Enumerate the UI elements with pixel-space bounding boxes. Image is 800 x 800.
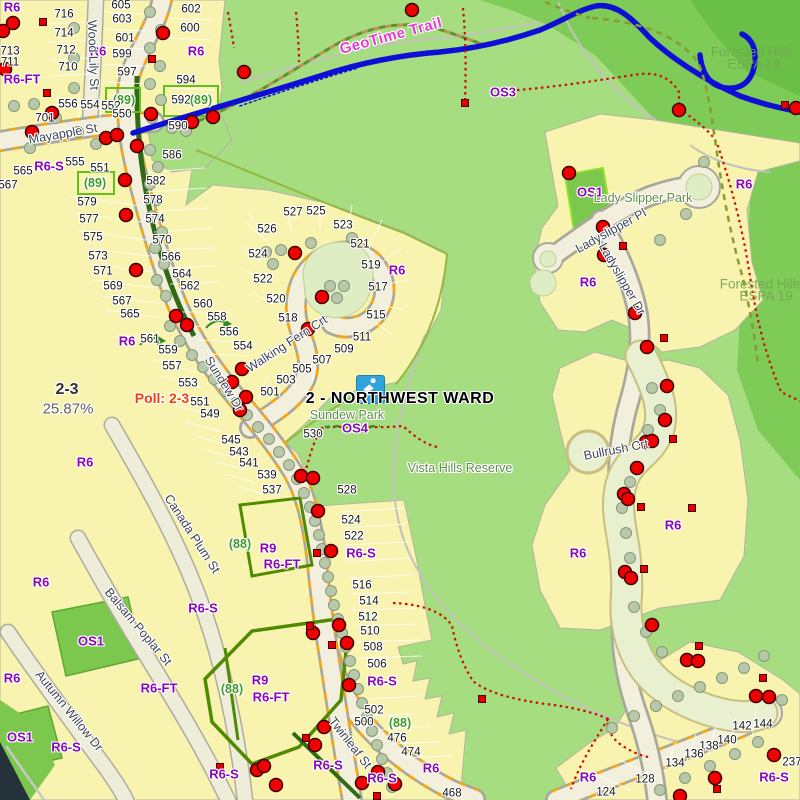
map-label-lot: 566 (161, 252, 180, 264)
map-label-lot: 517 (368, 282, 387, 294)
map-labels: R6R6R6R6-FTR6-SR6R6R6R6R6-FTR9R6-FTOS1OS… (0, 0, 800, 800)
map-label-lot: 571 (93, 266, 112, 278)
map-label-zg: (88) (221, 683, 243, 696)
map-label-pct: 25.87% (43, 402, 94, 417)
map-label-zone: R6 (33, 576, 50, 589)
map-label-lot: 526 (257, 224, 276, 236)
map-label-lot: 716 (54, 9, 73, 21)
map-label-zone: R6-S (188, 602, 218, 615)
map-label-lot: 124 (596, 787, 615, 799)
map-label-lot: 539 (257, 470, 276, 482)
map-label-lot: 558 (207, 312, 226, 324)
map-label-lot: 553 (178, 378, 197, 390)
map-label-lot: 502 (364, 705, 383, 717)
map-label-lot: 522 (253, 274, 272, 286)
map-label-espa: ESPA 19 (727, 57, 780, 71)
map-label-zone: R6 (77, 456, 94, 469)
map-label-lot: 549 (200, 409, 219, 421)
map-label-zg: (88) (389, 717, 411, 730)
map-label-zone: R6-S (367, 772, 397, 785)
map-label-zg: (89) (190, 94, 212, 107)
map-label-zone: R6 (736, 178, 753, 191)
map-label-lot: 601 (115, 33, 134, 45)
map-label-lot: 528 (337, 485, 356, 497)
map-label-lot: 578 (143, 195, 162, 207)
map-label-lot: 525 (306, 206, 325, 218)
map-label-zone: R6-S (34, 160, 64, 173)
map-canvas[interactable]: R6R6R6R6-FTR6-SR6R6R6R6R6-FTR9R6-FTOS1OS… (0, 0, 800, 800)
map-label-zone: R6-S (367, 675, 397, 688)
map-label-lot: 557 (162, 361, 181, 373)
map-label-zone: R9 (252, 674, 269, 687)
map-label-lot: 573 (88, 251, 107, 263)
map-label-park: Sundew Park (310, 409, 384, 422)
map-label-zone: R6 (188, 45, 205, 58)
map-label-lot: 524 (341, 515, 360, 527)
map-label-park: Vista Hills Reserve (408, 462, 513, 475)
map-label-st: Mayapple St (28, 122, 99, 146)
map-label-lot: 570 (152, 235, 171, 247)
map-label-lot: 600 (180, 23, 199, 35)
map-label-lot: 562 (180, 281, 199, 293)
map-label-lot: 530 (303, 429, 322, 441)
map-label-lot: 523 (333, 220, 352, 232)
map-label-lot: 144 (753, 719, 772, 731)
map-label-zone: R6-S (346, 547, 376, 560)
map-label-lot: 521 (350, 239, 369, 251)
map-label-st: Canada Plum St (162, 492, 222, 575)
map-label-lot: 524 (248, 249, 267, 261)
map-label-lot: 507 (312, 355, 331, 367)
map-label-lot: 508 (363, 642, 382, 654)
map-label-zone: R6 (570, 547, 587, 560)
map-label-lot: 237 (782, 757, 800, 769)
map-label-lot: 551 (90, 163, 109, 175)
map-label-lot: 522 (344, 531, 363, 543)
map-label-lot: 555 (65, 157, 84, 169)
map-label-lot: 550 (112, 109, 131, 121)
map-label-lot: 569 (103, 281, 122, 293)
map-label-lot: 140 (717, 735, 736, 747)
map-label-lot: 560 (193, 299, 212, 311)
map-label-lot: 515 (366, 310, 385, 322)
map-label-zone: R6-FT (4, 73, 41, 86)
map-label-lot: 556 (219, 327, 238, 339)
map-label-lot: 511 (353, 332, 371, 344)
map-label-lot: 142 (732, 721, 751, 733)
map-label-lot: 134 (665, 758, 684, 770)
map-label-zone: R6 (4, 672, 21, 685)
map-label-lot: 554 (80, 100, 99, 112)
map-label-lot: 586 (162, 150, 181, 162)
map-label-lot: 474 (401, 747, 420, 759)
map-label-lot: 575 (83, 232, 102, 244)
map-label-lot: 537 (262, 485, 281, 497)
map-label-lot: 468 (442, 788, 461, 800)
map-label-lot: 500 (354, 717, 373, 729)
map-label-st: Wood Lily St (86, 20, 101, 90)
map-label-lot: 603 (112, 14, 131, 26)
map-label-lot: 551 (190, 397, 209, 409)
map-label-zone: R6-FT (253, 691, 290, 704)
map-label-lot: 712 (56, 45, 75, 57)
map-label-espa: ESPA 19 (739, 289, 792, 303)
map-label-lot: 605 (111, 0, 130, 12)
map-label-lot: 514 (359, 596, 378, 608)
map-label-lot: 701 (35, 113, 54, 125)
map-label-zone: R6 (580, 771, 597, 784)
map-label-zone: R6-FT (141, 682, 178, 695)
map-label-zone: R6 (389, 264, 406, 277)
map-label-lot: 714 (54, 28, 73, 40)
map-label-lot: 518 (278, 313, 297, 325)
map-label-lot: 512 (358, 612, 377, 624)
map-label-lot: 567 (0, 180, 18, 192)
map-label-lot: 711 (1, 57, 19, 69)
map-label-lot: 136 (684, 749, 703, 761)
map-label-zone: OS1 (78, 635, 104, 648)
map-label-zone: OS1 (7, 731, 33, 744)
map-label-lot: 506 (367, 659, 386, 671)
map-label-lot: 567 (112, 296, 131, 308)
map-label-lot: 602 (181, 4, 200, 16)
map-label-lot: 516 (352, 580, 371, 592)
map-label-lot: 476 (387, 733, 406, 745)
map-label-lot: 565 (13, 166, 32, 178)
map-label-zg: (89) (84, 177, 106, 190)
map-label-lot: 579 (77, 197, 96, 209)
map-label-zone: OS3 (490, 86, 516, 99)
map-label-lot: 510 (360, 626, 379, 638)
map-label-lot: 594 (176, 75, 195, 87)
map-label-lot: 520 (266, 294, 285, 306)
map-label-zone: R6-S (51, 741, 81, 754)
map-label-ward: 2 - NORTHWEST WARD (306, 391, 495, 407)
map-label-lot: 509 (334, 344, 353, 356)
map-label-lot: 599 (112, 49, 131, 61)
map-label-st: Balsam Poplar St (102, 586, 174, 668)
map-label-lot: 577 (79, 214, 98, 226)
map-label-zone: R6-S (209, 768, 239, 781)
map-label-lot: 545 (221, 435, 240, 447)
map-label-zone: R6 (119, 335, 136, 348)
map-label-lot: 556 (58, 99, 77, 111)
map-label-lot: 503 (276, 375, 295, 387)
map-label-zone: R6 (4, 1, 21, 14)
map-label-lot: 554 (233, 341, 252, 353)
map-label-lot: 592 (171, 95, 190, 107)
map-label-lot: 710 (58, 62, 77, 74)
map-label-zone: R6 (665, 519, 682, 532)
map-label-lot: 527 (283, 207, 302, 219)
map-label-zg: (88) (229, 538, 251, 551)
map-label-lot: 574 (145, 214, 164, 226)
map-label-zone: R6-FT (264, 558, 301, 571)
map-label-lot: 541 (239, 458, 258, 470)
map-label-pid: 2-3 (55, 382, 78, 398)
map-label-lot: 590 (168, 121, 187, 133)
map-label-poll: Poll: 2-3 (135, 391, 189, 405)
map-label-zone: OS4 (342, 422, 368, 435)
map-label-zone: R9 (260, 542, 277, 555)
map-label-lot: 564 (172, 269, 191, 281)
map-label-lot: 519 (361, 260, 380, 272)
map-label-lot: 565 (120, 309, 139, 321)
map-label-zone: R6 (423, 762, 440, 775)
map-label-lot: 559 (158, 345, 177, 357)
map-label-zone: R6-S (759, 771, 789, 784)
map-label-st: Bullrush Crt (583, 438, 649, 463)
map-label-zone: R6 (580, 276, 597, 289)
map-label-lot: 561 (140, 334, 159, 346)
map-label-lot: 128 (635, 774, 654, 786)
map-label-lot: 582 (146, 176, 165, 188)
map-label-st: Ladyslipper Dr (596, 241, 647, 317)
map-label-lot: 597 (117, 67, 136, 79)
map-label-geo: GeoTime Trail (338, 15, 444, 57)
map-label-zone: R6-S (313, 759, 343, 772)
map-label-lot: 501 (260, 387, 279, 399)
map-label-park: Lady Slipper Park (594, 192, 693, 205)
